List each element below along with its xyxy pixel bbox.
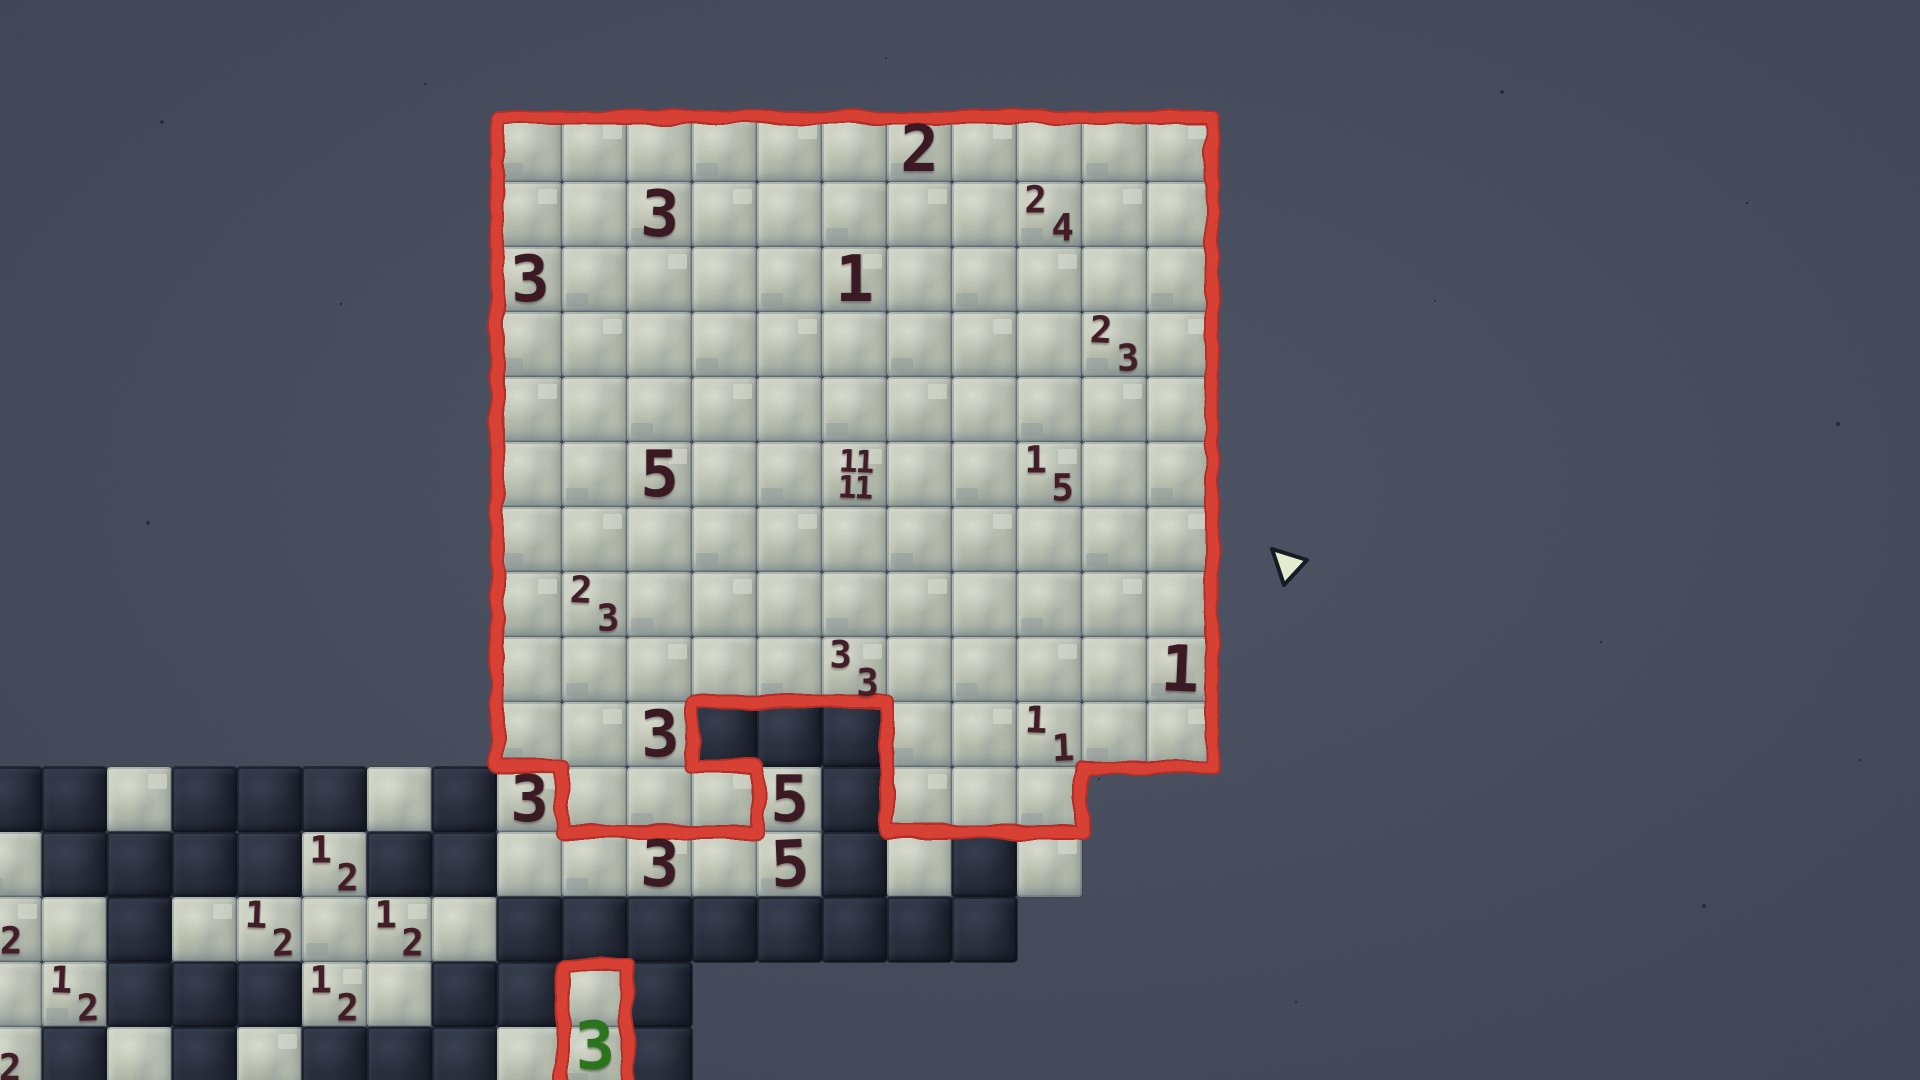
region-tile[interactable] (1017, 702, 1082, 767)
region-tile[interactable] (887, 702, 952, 767)
region-tile[interactable] (1147, 442, 1212, 507)
region-tile[interactable] (757, 572, 822, 637)
region-tile[interactable] (562, 247, 627, 312)
revealed-tile-light (0, 897, 42, 962)
region-tile[interactable] (627, 637, 692, 702)
region-tile[interactable] (562, 962, 627, 1027)
region-tile[interactable] (952, 117, 1017, 182)
region-tile[interactable] (1082, 572, 1147, 637)
region-tile[interactable] (757, 312, 822, 377)
revealed-tile-light (302, 897, 367, 962)
region-tile[interactable] (562, 702, 627, 767)
revealed-tile-dark (0, 767, 42, 832)
revealed-tile-dark (172, 962, 237, 1027)
region-tile[interactable] (497, 312, 562, 377)
revealed-tile-light (302, 832, 367, 897)
revealed-tile-light (107, 1027, 172, 1080)
region-tile[interactable] (1082, 377, 1147, 442)
region-tile[interactable] (887, 572, 952, 637)
region-tile[interactable] (1017, 247, 1082, 312)
region-tile[interactable] (692, 312, 757, 377)
region-tile[interactable] (822, 442, 887, 507)
region-tile[interactable] (1082, 507, 1147, 572)
revealed-tile-dark (107, 832, 172, 897)
revealed-tile-dark (627, 1027, 692, 1080)
region-tile[interactable] (1017, 182, 1082, 247)
region-tile[interactable] (1017, 117, 1082, 182)
revealed-tile-light (497, 1027, 562, 1080)
revealed-tile-dark (692, 897, 757, 962)
revealed-tile-dark (237, 767, 302, 832)
region-tile[interactable] (757, 247, 822, 312)
region-tile[interactable] (1017, 312, 1082, 377)
revealed-tile-dark (432, 767, 497, 832)
region-tile[interactable] (952, 507, 1017, 572)
revealed-tile-dark (692, 702, 757, 767)
region-tile[interactable] (627, 182, 692, 247)
revealed-tile-light (0, 832, 42, 897)
region-tile[interactable] (1082, 702, 1147, 767)
revealed-tile-dark (42, 1027, 107, 1080)
revealed-tile-light (42, 897, 107, 962)
revealed-tile-light (302, 962, 367, 1027)
region-tile[interactable] (627, 247, 692, 312)
revealed-tile-dark (172, 832, 237, 897)
region-tile[interactable] (757, 507, 822, 572)
region-tile[interactable] (1147, 507, 1212, 572)
region-tile[interactable] (822, 182, 887, 247)
revealed-tile-dark (757, 897, 822, 962)
revealed-tile-light (1017, 832, 1082, 897)
revealed-tile-light (237, 1027, 302, 1080)
revealed-tile-light (887, 832, 952, 897)
region-tile[interactable] (627, 442, 692, 507)
region-tile[interactable] (887, 507, 952, 572)
region-tile[interactable] (952, 702, 1017, 767)
region-tile[interactable] (757, 117, 822, 182)
region-tile[interactable] (1147, 312, 1212, 377)
region-tile[interactable] (692, 117, 757, 182)
region-tile[interactable] (887, 312, 952, 377)
region-tile[interactable] (692, 637, 757, 702)
revealed-tile-dark (497, 897, 562, 962)
region-tile[interactable] (1082, 247, 1147, 312)
region-tile[interactable] (627, 767, 692, 832)
revealed-tile-light (497, 767, 562, 832)
region-tile[interactable] (562, 767, 627, 832)
region-tile[interactable] (1147, 572, 1212, 637)
region-tile[interactable] (562, 637, 627, 702)
region-tile[interactable] (1082, 442, 1147, 507)
region-tile[interactable] (1017, 767, 1082, 832)
revealed-tile-dark (367, 832, 432, 897)
revealed-tile-light (237, 897, 302, 962)
region-tile[interactable] (952, 312, 1017, 377)
region-tile[interactable] (952, 182, 1017, 247)
region-tile[interactable] (692, 182, 757, 247)
revealed-tile-light (0, 1027, 42, 1080)
region-tile[interactable] (562, 117, 627, 182)
region-tile[interactable] (822, 117, 887, 182)
revealed-tile-dark (887, 897, 952, 962)
region-tile[interactable] (952, 442, 1017, 507)
region-tile[interactable] (1147, 637, 1212, 702)
revealed-tile-dark (757, 702, 822, 767)
revealed-tile-light (757, 767, 822, 832)
revealed-tile-dark (822, 832, 887, 897)
revealed-tile-dark (302, 767, 367, 832)
revealed-tile-light (757, 832, 822, 897)
revealed-tile-dark (822, 702, 887, 767)
region-tile[interactable] (692, 442, 757, 507)
region-tile[interactable] (952, 767, 1017, 832)
region-tile[interactable] (627, 507, 692, 572)
region-tile[interactable] (562, 312, 627, 377)
revealed-tile-light (497, 832, 562, 897)
region-tile[interactable] (497, 702, 562, 767)
region-tile[interactable] (1082, 182, 1147, 247)
region-tile[interactable] (952, 377, 1017, 442)
revealed-tile-light (172, 897, 237, 962)
region-tile[interactable] (757, 182, 822, 247)
region-tile[interactable] (627, 702, 692, 767)
region-tile[interactable] (1017, 377, 1082, 442)
revealed-tile-light (42, 962, 107, 1027)
region-tile[interactable] (952, 247, 1017, 312)
revealed-tile-light (367, 897, 432, 962)
region-tile[interactable] (1082, 117, 1147, 182)
region-tile[interactable] (562, 1027, 627, 1080)
revealed-tile-dark (432, 1027, 497, 1080)
revealed-tile-dark (627, 897, 692, 962)
revealed-tile-dark (497, 962, 562, 1027)
region-tile[interactable] (952, 572, 1017, 637)
region-tile[interactable] (822, 507, 887, 572)
revealed-tile-dark (42, 767, 107, 832)
revealed-tile-light (367, 767, 432, 832)
board-tile-layer (0, 0, 1920, 1080)
revealed-tile-dark (172, 1027, 237, 1080)
revealed-tile-dark (172, 767, 237, 832)
region-tile[interactable] (887, 767, 952, 832)
region-tile[interactable] (822, 377, 887, 442)
region-tile[interactable] (887, 117, 952, 182)
region-tile[interactable] (822, 247, 887, 312)
region-tile[interactable] (1147, 702, 1212, 767)
revealed-tile-light (432, 897, 497, 962)
region-tile[interactable] (822, 312, 887, 377)
region-tile[interactable] (692, 507, 757, 572)
region-tile[interactable] (692, 377, 757, 442)
revealed-tile-light (367, 962, 432, 1027)
region-tile[interactable] (497, 377, 562, 442)
revealed-tile-dark (432, 962, 497, 1027)
region-tile[interactable] (887, 442, 952, 507)
revealed-tile-dark (952, 897, 1017, 962)
region-tile[interactable] (822, 637, 887, 702)
region-tile[interactable] (562, 507, 627, 572)
region-tile[interactable] (1082, 637, 1147, 702)
region-tile[interactable] (887, 377, 952, 442)
revealed-tile-dark (562, 897, 627, 962)
region-tile[interactable] (627, 117, 692, 182)
region-tile[interactable] (497, 117, 562, 182)
region-tile[interactable] (952, 637, 1017, 702)
region-tile[interactable] (822, 572, 887, 637)
revealed-tile-dark (367, 1027, 432, 1080)
region-tile[interactable] (627, 312, 692, 377)
revealed-tile-dark (237, 962, 302, 1027)
region-tile[interactable] (757, 637, 822, 702)
revealed-tile-dark (822, 767, 887, 832)
revealed-tile-light (627, 832, 692, 897)
region-tile[interactable] (1147, 117, 1212, 182)
region-tile[interactable] (887, 182, 952, 247)
region-tile[interactable] (497, 507, 562, 572)
revealed-tile-dark (302, 1027, 367, 1080)
region-tile[interactable] (1082, 312, 1147, 377)
revealed-tile-light (107, 767, 172, 832)
region-tile[interactable] (497, 442, 562, 507)
region-tile[interactable] (627, 377, 692, 442)
region-tile[interactable] (757, 377, 822, 442)
region-tile[interactable] (757, 442, 822, 507)
region-tile[interactable] (562, 442, 627, 507)
region-tile[interactable] (692, 247, 757, 312)
region-tile[interactable] (497, 572, 562, 637)
revealed-tile-dark (822, 897, 887, 962)
region-tile[interactable] (627, 572, 692, 637)
revealed-tile-light (692, 832, 757, 897)
region-tile[interactable] (497, 637, 562, 702)
revealed-tile-dark (107, 962, 172, 1027)
region-tile[interactable] (497, 247, 562, 312)
revealed-tile-dark (952, 832, 1017, 897)
region-tile[interactable] (1017, 572, 1082, 637)
revealed-tile-light (0, 962, 42, 1027)
region-tile[interactable] (887, 637, 952, 702)
region-tile[interactable] (1147, 182, 1212, 247)
region-tile[interactable] (1147, 377, 1212, 442)
revealed-tile-dark (42, 832, 107, 897)
region-tile[interactable] (887, 247, 952, 312)
revealed-tile-dark (627, 962, 692, 1027)
region-tile[interactable] (692, 767, 757, 832)
region-tile[interactable] (1017, 442, 1082, 507)
region-tile[interactable] (562, 182, 627, 247)
game-screen: 23315133535242315233311121212121211 1132… (0, 0, 1920, 1080)
region-tile[interactable] (1017, 637, 1082, 702)
region-tile[interactable] (1017, 507, 1082, 572)
revealed-tile-light (562, 832, 627, 897)
revealed-tile-dark (237, 832, 302, 897)
region-tile[interactable] (562, 572, 627, 637)
region-tile[interactable] (562, 377, 627, 442)
region-tile[interactable] (692, 572, 757, 637)
region-tile[interactable] (497, 182, 562, 247)
region-tile[interactable] (1147, 247, 1212, 312)
revealed-tile-dark (432, 832, 497, 897)
revealed-tile-dark (107, 897, 172, 962)
